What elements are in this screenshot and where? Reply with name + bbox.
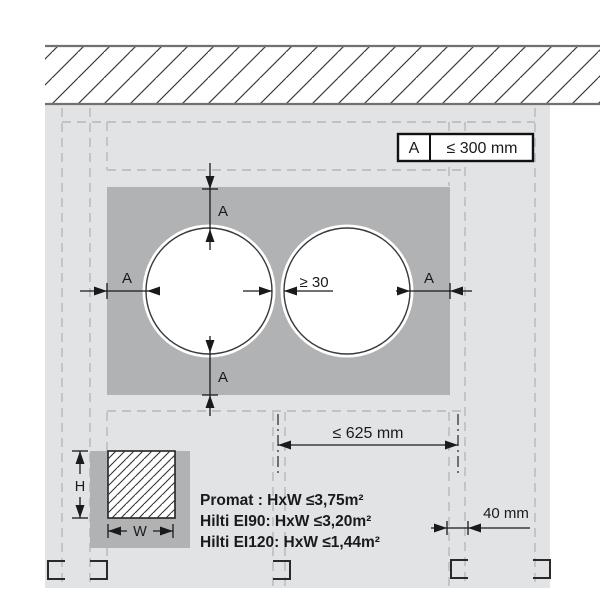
legend-key: A: [409, 140, 420, 157]
dim-h-label: H: [75, 479, 85, 495]
product-notes: Promat : HxW ≤3,75m² Hilti EI90: HxW ≤3,…: [200, 492, 380, 551]
dim-left-a-label: A: [122, 270, 132, 287]
ceiling-section-hatch: [45, 45, 600, 105]
dim-offset-label: 40 mm: [483, 505, 529, 522]
hatch-band-pattern: [45, 45, 600, 105]
legend-value: ≤ 300 mm: [446, 140, 517, 157]
dim-right-a-label: A: [424, 270, 434, 287]
note-line-hilti-ei120: Hilti EI120: HxW ≤1,44m²: [200, 534, 380, 551]
dim-top-a-label: A: [218, 203, 228, 220]
dim-gap-label: ≥ 30: [299, 274, 328, 291]
note-line-promat: Promat : HxW ≤3,75m²: [200, 492, 364, 509]
detail-opening-hatch: [108, 451, 175, 518]
legend-box: A ≤ 300 mm: [398, 134, 533, 161]
dim-span-label: ≤ 625 mm: [332, 425, 403, 442]
dim-bottom-a-label: A: [218, 369, 228, 386]
penetration-seal-diagram: A A A A ≥ 30 ≤ 625 mm: [0, 0, 600, 600]
diagram-stage: A A A A ≥ 30 ≤ 625 mm: [0, 0, 600, 600]
note-line-hilti-ei90: Hilti EI90: HxW ≤3,20m²: [200, 513, 371, 530]
dim-w-label: W: [133, 524, 147, 540]
